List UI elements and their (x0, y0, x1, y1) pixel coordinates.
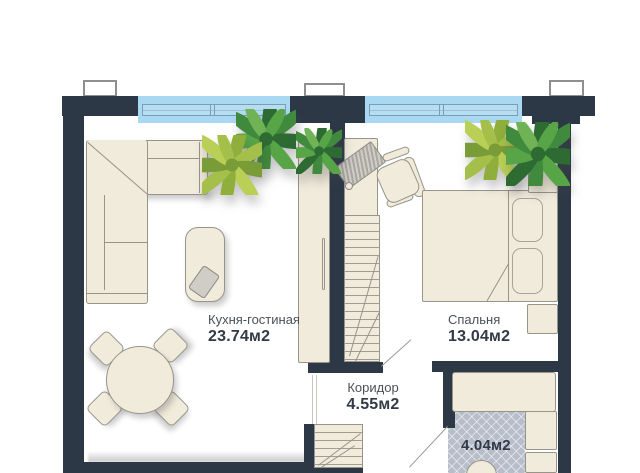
nightstand (527, 304, 558, 334)
round-dining-table (106, 346, 174, 414)
sofa-seam (104, 242, 147, 243)
sink (525, 452, 557, 473)
wardrobe-diagonal (318, 433, 361, 466)
double-bed (422, 190, 558, 302)
bathroom-label: 4.04м2 (461, 437, 511, 455)
sofa-seam (148, 158, 199, 159)
washing-machine (525, 411, 557, 450)
wall-shadow (88, 451, 310, 462)
bedroom-name: Спальня (448, 312, 500, 327)
washer-body (525, 411, 557, 450)
bedroom-wardrobe (344, 215, 380, 362)
bedroom-label: Спальня 13.04м2 (448, 312, 510, 346)
wall-top-right (522, 96, 595, 116)
mouse (345, 182, 353, 190)
floor-plan: Кухня-гостиная 23.74м2 Спальня 13.04м2 К… (0, 0, 640, 473)
wall-bedroom-bottom (432, 361, 558, 372)
bathroom-area: 4.04м2 (461, 437, 511, 455)
plant-wall (296, 128, 342, 174)
wall-top-left (62, 96, 138, 116)
bathtub-body (452, 372, 556, 412)
bedroom-area: 13.04м2 (448, 328, 510, 346)
pillow (512, 198, 543, 242)
kitchen-area: 23.74м2 (208, 328, 300, 346)
bed-headboard-seam (508, 191, 509, 301)
window-divider (210, 104, 211, 116)
plant-bedroom-dark (506, 122, 570, 186)
window-bedroom (365, 96, 522, 123)
bedroom-door-swing (381, 339, 411, 367)
bathroom-door-swing (409, 426, 448, 468)
sink-counter (525, 452, 557, 473)
vent-block-middle (304, 83, 345, 97)
kitchen-label: Кухня-гостиная 23.74м2 (208, 312, 300, 346)
wardrobe-body (314, 424, 363, 468)
wall-left (63, 114, 84, 473)
cabinet-handle (322, 238, 325, 290)
sofa-left-section (86, 140, 148, 304)
wardrobe-base-wall (314, 468, 363, 473)
corridor-wardrobe (314, 424, 363, 473)
wall-corridor-cap (308, 362, 383, 373)
wall-corridor-stub (304, 424, 314, 473)
window-divider (214, 104, 215, 116)
passage-mark (316, 375, 317, 424)
passage-mark (312, 375, 313, 424)
corridor-name: Коридор (347, 380, 398, 395)
window-divider (443, 104, 444, 116)
sofa-seam (87, 293, 147, 294)
plant-kitchen-light (202, 135, 262, 195)
sofa-seam (147, 142, 148, 193)
vent-block-left (83, 80, 117, 97)
pillow (512, 248, 543, 294)
sofa-seam (199, 142, 200, 193)
bathtub (452, 372, 556, 412)
vent-block-right (549, 80, 584, 97)
window-divider (439, 104, 440, 116)
wall-top-middle (290, 96, 365, 123)
wall-bottom (63, 462, 314, 473)
corridor-area: 4.55м2 (323, 396, 423, 414)
kitchen-name: Кухня-гостиная (208, 312, 300, 327)
corridor-label: Коридор 4.55м2 (323, 380, 423, 414)
